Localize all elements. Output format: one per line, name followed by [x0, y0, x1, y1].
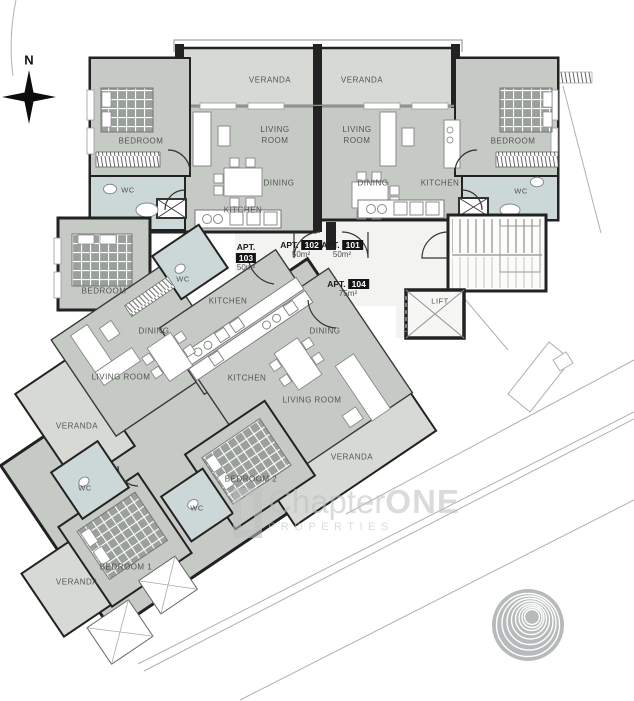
label-bedroom-apt102: BEDROOM: [119, 137, 164, 146]
apartment-tag-104: APT.104 75m²: [327, 279, 369, 299]
spiral-logo: [492, 589, 564, 661]
label-wc1-apt104: WC: [78, 484, 92, 493]
label-veranda-apt103: VERANDA: [56, 422, 98, 431]
label-kitchen-apt103: KITCHEN: [209, 297, 248, 306]
shower-apt101: [459, 198, 488, 216]
veranda-apt101: [318, 48, 456, 106]
label-bedroom2-apt104: BEDROOM 2: [225, 475, 278, 484]
wardrobe-apt101: [496, 152, 558, 167]
balcony-divider-hatch: [556, 72, 592, 83]
apartment-tag-102: APT.102 50m²: [280, 240, 322, 260]
wardrobe-apt102: [96, 152, 160, 167]
label-wc-apt103: WC: [176, 275, 190, 284]
label-kitchen-apt101: KITCHEN: [421, 179, 460, 188]
bed-apt101: [500, 88, 552, 132]
label-wc2-apt104: WC: [190, 504, 204, 513]
shower-apt102: [157, 199, 186, 218]
label-wc-apt101: WC: [514, 187, 528, 196]
toilet-apt101: [531, 177, 544, 187]
label-bedroom1-apt104: BEDROOM 1: [100, 563, 153, 572]
label-kitchen-apt104: KITCHEN: [228, 374, 267, 383]
label-veranda-apt102: VERANDA: [249, 76, 291, 85]
label-dining-apt101: DINING: [358, 179, 389, 188]
label-bedroom-apt103: BEDROOM: [82, 287, 127, 296]
label-living-apt102: LIVING ROOM: [248, 125, 302, 147]
floor-plan-drawing: [0, 0, 634, 701]
label-kitchen-apt102: KITCHEN: [224, 206, 263, 215]
apartment-tag-101: APT.101 50m²: [321, 240, 363, 260]
label-dining-apt102: DINING: [264, 179, 295, 188]
apartment-tag-103: APT.103 50m²: [236, 242, 256, 273]
label-dining-apt103: DINING: [139, 327, 170, 336]
label-wc-apt102: WC: [121, 186, 135, 195]
label-living-apt103: LIVING ROOM: [92, 373, 151, 382]
label-lift: LIFT: [431, 297, 448, 306]
label-veranda-side-apt104: VERANDA: [331, 453, 373, 462]
floor-plan-page: N VERANDA VERANDA LIVING ROOM LIVING ROO…: [0, 0, 634, 701]
compass-north-label: N: [24, 53, 33, 68]
sofa-apt102: [193, 112, 211, 166]
label-veranda-apt101: VERANDA: [341, 76, 383, 85]
label-dining-apt104: DINING: [310, 327, 341, 336]
toilet-apt102: [104, 184, 117, 194]
label-living-apt101: LIVING ROOM: [330, 125, 384, 147]
label-bedroom-apt101: BEDROOM: [491, 137, 536, 146]
outbuilding-outline: [508, 342, 573, 412]
label-veranda-bottom-apt104: VERANDA: [56, 578, 98, 587]
compass-star: [2, 70, 56, 124]
bed-apt102: [101, 88, 153, 132]
label-living-apt104: LIVING ROOM: [283, 396, 342, 405]
